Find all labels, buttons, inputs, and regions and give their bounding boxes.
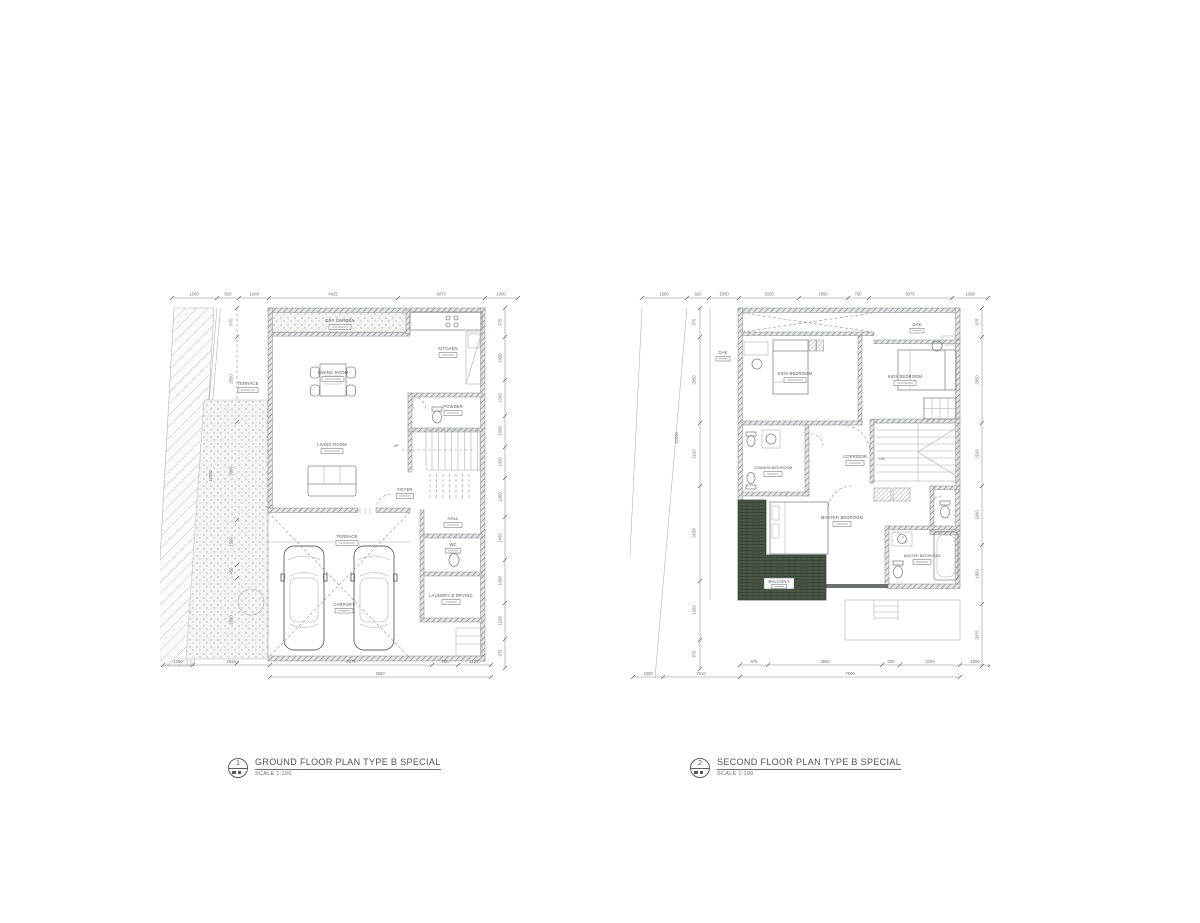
svg-text:1450: 1450	[498, 353, 503, 363]
svg-text:1050: 1050	[498, 426, 503, 436]
svg-text:820: 820	[695, 292, 703, 297]
svg-text:2850: 2850	[229, 615, 234, 625]
svg-text:975: 975	[498, 318, 503, 326]
svg-text:1000: 1000	[173, 659, 183, 664]
svg-text:1000: 1000	[643, 671, 653, 676]
ground-plan-scale: SCALE 1:100	[255, 771, 441, 777]
car-left	[281, 546, 327, 650]
svg-text:975: 975	[692, 650, 697, 658]
dn-label: DN	[879, 457, 885, 461]
svg-text:1200: 1200	[498, 616, 503, 626]
kitchen-label: KITCHEN	[438, 346, 457, 351]
svg-text:2025: 2025	[925, 659, 935, 664]
drawing-ref-number: 1	[229, 759, 247, 768]
dak-left-label: DAK	[718, 350, 727, 355]
svg-text:1500: 1500	[659, 292, 669, 297]
carport-label: CARPORT	[333, 602, 355, 607]
svg-text:2810: 2810	[696, 671, 706, 676]
svg-text:450: 450	[229, 567, 234, 575]
svg-text:3900: 3900	[820, 659, 830, 664]
svg-text:1000: 1000	[719, 292, 729, 297]
walls	[268, 308, 485, 661]
wc-label: WC	[449, 542, 456, 547]
svg-text:2810: 2810	[226, 659, 236, 664]
svg-text:900: 900	[442, 659, 450, 664]
svg-text:1950: 1950	[975, 569, 980, 579]
svg-text:1950: 1950	[975, 510, 980, 520]
powder-room-fixtures	[413, 397, 442, 423]
drawing-sheet: UP	[0, 0, 1200, 923]
common-bathroom-label: COMMON BATHROOM	[754, 466, 792, 470]
svg-text:1000: 1000	[249, 292, 259, 297]
balcony-deck: BALCONY	[738, 500, 826, 600]
master-bathroom-label: MASTER BATHROOM	[904, 554, 940, 558]
ground-floor-plan-drawing: UP	[160, 288, 520, 692]
drawing-ref-number: 2	[691, 759, 709, 768]
ground-floor-plan: UP	[160, 288, 520, 692]
foyer-label: FOYER	[397, 487, 412, 492]
master-bed	[770, 502, 828, 554]
master-bedroom-label: MASTER BEDROOM	[821, 515, 864, 520]
drawing-ref-bubble: 1	[228, 758, 248, 778]
svg-text:2850: 2850	[692, 375, 697, 385]
kids-bedroom-left-label: KIDS BEDROOM	[778, 371, 813, 376]
up-label: UP	[394, 444, 400, 448]
kids-bedroom-left-furniture	[744, 340, 824, 394]
terrace-side-label: TERRACE	[237, 381, 258, 386]
svg-text:2850: 2850	[975, 375, 980, 385]
svg-text:600: 600	[888, 659, 896, 664]
rear-court	[456, 628, 482, 656]
powder-label: POWDER	[443, 404, 463, 409]
dry-garden-label: DRY GARDEN	[325, 318, 354, 323]
svg-text:1000: 1000	[496, 292, 506, 297]
svg-text:3300: 3300	[229, 466, 234, 476]
kids-bedroom-right-label: KIDS BEDROOM	[888, 374, 923, 379]
svg-text:1125: 1125	[469, 659, 479, 664]
svg-text:2025: 2025	[764, 292, 774, 297]
svg-text:1450: 1450	[498, 533, 503, 543]
svg-text:1000: 1000	[970, 659, 980, 664]
svg-text:820: 820	[225, 292, 233, 297]
svg-text:975: 975	[692, 318, 697, 326]
wardrobe-row	[874, 488, 910, 501]
svg-text:3075: 3075	[436, 292, 446, 297]
void-strip	[742, 313, 872, 332]
svg-text:975: 975	[751, 659, 759, 664]
svg-text:12000: 12000	[208, 470, 213, 482]
svg-text:12000: 12000	[674, 432, 679, 444]
svg-text:975: 975	[229, 318, 234, 326]
stairs-down: DN	[874, 423, 958, 481]
svg-text:3075: 3075	[905, 292, 915, 297]
second-plan-scale: SCALE 1:100	[717, 771, 901, 777]
svg-text:7500: 7500	[375, 671, 385, 676]
svg-text:2100: 2100	[975, 449, 980, 459]
second-plan-title: SECOND FLOOR PLAN TYPE B SPECIAL	[717, 757, 901, 770]
second-floor-plan-drawing: DN	[630, 288, 990, 692]
svg-text:1650: 1650	[818, 292, 828, 297]
ground-title-block: 1 GROUND FLOOR PLAN TYPE B SPECIAL SCALE…	[228, 757, 441, 778]
corridor-label: CORRIDOR	[843, 454, 867, 459]
svg-text:1450: 1450	[498, 576, 503, 586]
laundry-label: LAUNDRY & DRYING	[429, 593, 473, 598]
sofa	[308, 466, 356, 496]
svg-text:2100: 2100	[692, 449, 697, 459]
ground-plan-title: GROUND FLOOR PLAN TYPE B SPECIAL	[255, 757, 441, 770]
living-label: LIVING ROOM	[317, 442, 347, 447]
dak-right-label: DAK	[912, 322, 921, 327]
common-bathroom-fixtures	[746, 430, 780, 489]
wc-right-fixture	[940, 501, 950, 518]
car-right	[351, 546, 397, 650]
svg-text:1500: 1500	[189, 292, 199, 297]
svg-text:3150: 3150	[692, 528, 697, 538]
svg-text:1500: 1500	[229, 537, 234, 547]
dining-label: DINING ROOM	[318, 370, 349, 375]
hall-label: HALL	[447, 516, 459, 521]
svg-text:750: 750	[855, 292, 863, 297]
svg-text:2850: 2850	[229, 374, 234, 384]
svg-text:7500: 7500	[845, 671, 855, 676]
svg-text:2075: 2075	[975, 630, 980, 640]
svg-text:1200: 1200	[498, 393, 503, 403]
svg-text:975: 975	[975, 318, 980, 326]
site-boundary	[630, 308, 710, 678]
second-floor-plan: DN	[630, 288, 990, 692]
lower-roof-extension	[845, 600, 960, 640]
svg-text:1050: 1050	[498, 457, 503, 467]
drawing-ref-bubble: 2	[690, 758, 710, 778]
svg-text:1950: 1950	[692, 605, 697, 615]
svg-text:975: 975	[498, 649, 503, 657]
svg-text:4425: 4425	[328, 292, 338, 297]
second-title-block: 2 SECOND FLOOR PLAN TYPE B SPECIAL SCALE…	[690, 757, 901, 778]
terrace-car-label: TERRACE	[336, 534, 357, 539]
svg-text:5475: 5475	[346, 659, 356, 664]
svg-text:1300: 1300	[498, 492, 503, 502]
balcony-label: BALCONY	[768, 579, 789, 584]
svg-text:1000: 1000	[965, 292, 975, 297]
